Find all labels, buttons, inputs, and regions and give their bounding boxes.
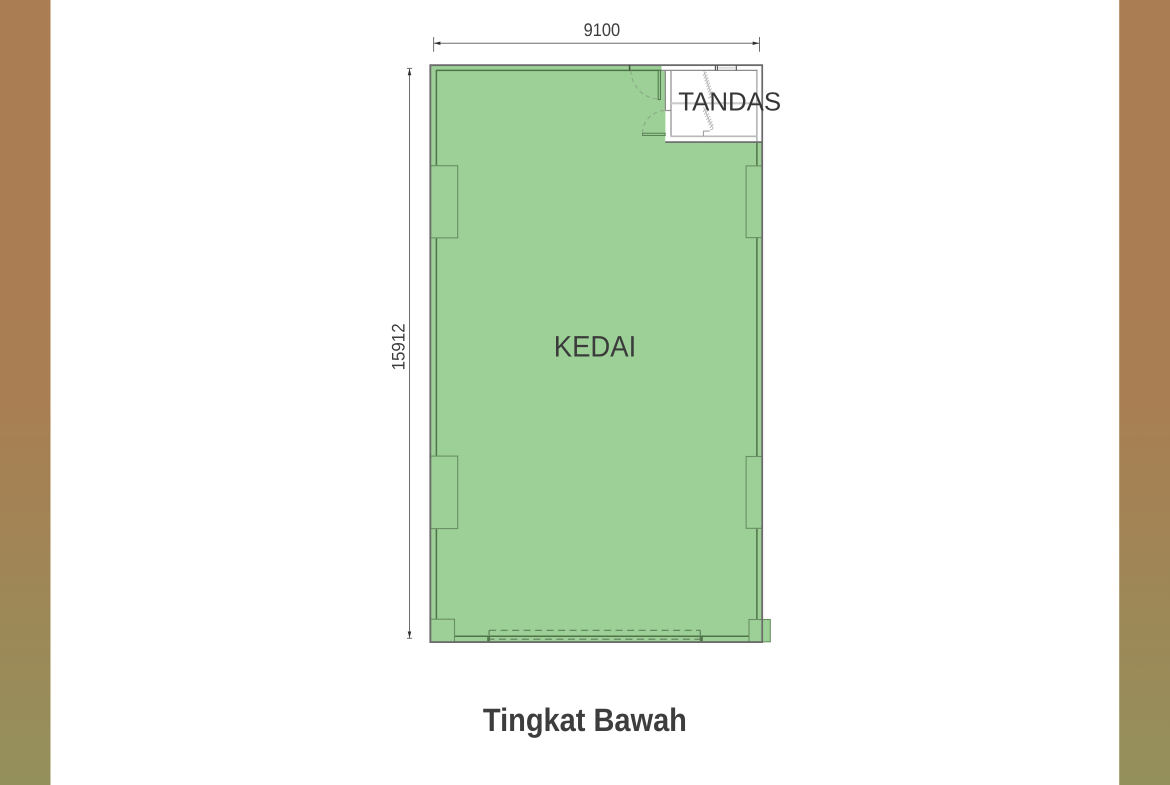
svg-text:KEDAI: KEDAI	[554, 330, 637, 363]
svg-text:Tingkat Bawah: Tingkat Bawah	[483, 702, 687, 738]
svg-text:15912: 15912	[389, 323, 409, 370]
svg-text:9100: 9100	[584, 20, 621, 40]
svg-text:TANDAS: TANDAS	[678, 87, 781, 117]
